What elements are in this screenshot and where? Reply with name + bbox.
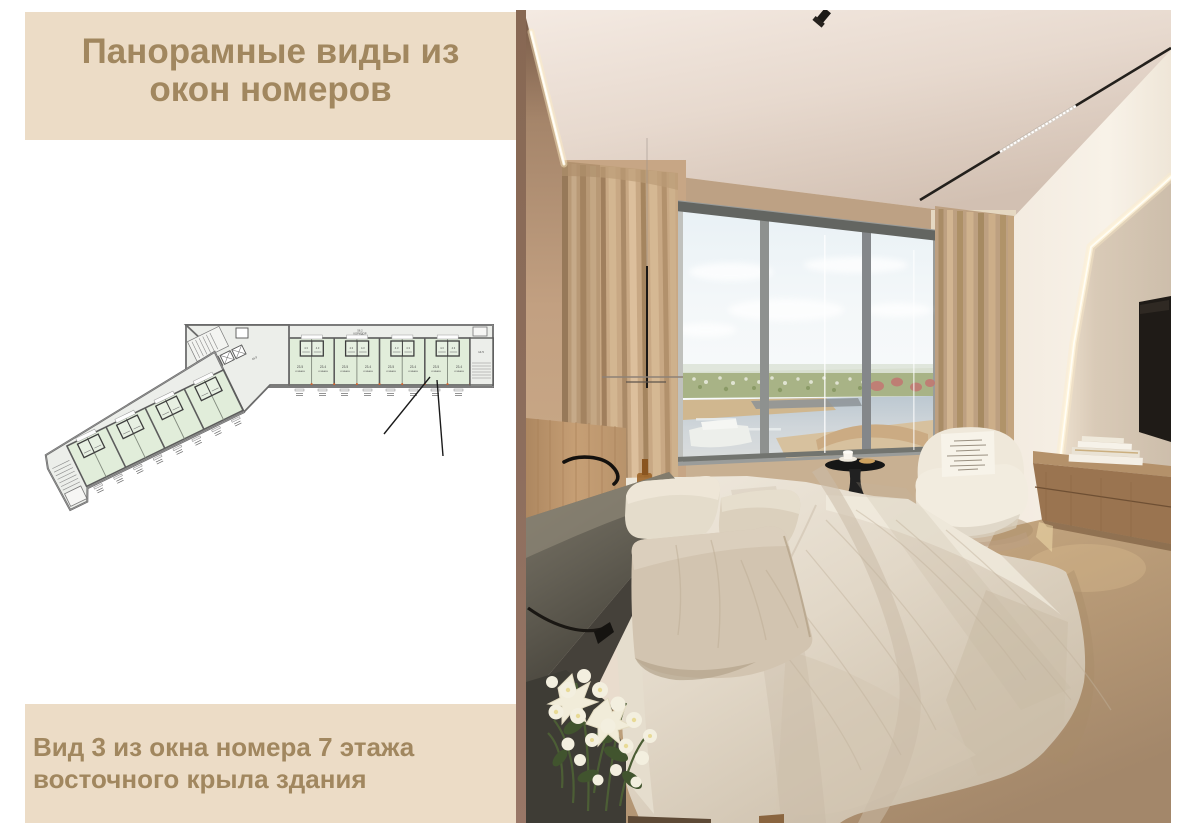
svg-text:КОМНАТА: КОМНАТА (454, 370, 464, 373)
svg-text:КОМНАТА: КОМНАТА (340, 370, 350, 373)
svg-text:4.3: 4.3 (452, 346, 456, 350)
svg-text:4.3: 4.3 (349, 346, 353, 350)
svg-text:КОМНАТА: КОМНАТА (295, 370, 305, 373)
svg-text:КОМНАТА: КОМНАТА (386, 370, 396, 373)
svg-text:23.4: 23.4 (410, 365, 416, 369)
svg-text:4.3: 4.3 (406, 346, 410, 350)
svg-text:4.3: 4.3 (395, 346, 399, 350)
svg-text:КОМНАТА: КОМНАТА (408, 370, 418, 373)
svg-text:КОМНАТА: КОМНАТА (431, 370, 441, 373)
svg-text:23.4: 23.4 (365, 365, 371, 369)
svg-text:4.3: 4.3 (440, 346, 444, 350)
svg-text:23.5: 23.5 (297, 365, 303, 369)
svg-text:КОМНАТА: КОМНАТА (363, 370, 373, 373)
svg-text:4.3: 4.3 (316, 346, 320, 350)
svg-text:КОМНАТА: КОМНАТА (318, 370, 328, 373)
svg-text:23.4: 23.4 (320, 365, 326, 369)
svg-text:23.5: 23.5 (342, 365, 348, 369)
svg-text:14.5: 14.5 (478, 350, 484, 354)
svg-text:23.5: 23.5 (433, 365, 439, 369)
svg-text:4.3: 4.3 (361, 346, 365, 350)
svg-text:4.3: 4.3 (304, 346, 308, 350)
svg-text:КОРИДОР: КОРИДОР (353, 332, 366, 336)
svg-text:23.4: 23.4 (456, 365, 462, 369)
svg-text:23.5: 23.5 (388, 365, 394, 369)
